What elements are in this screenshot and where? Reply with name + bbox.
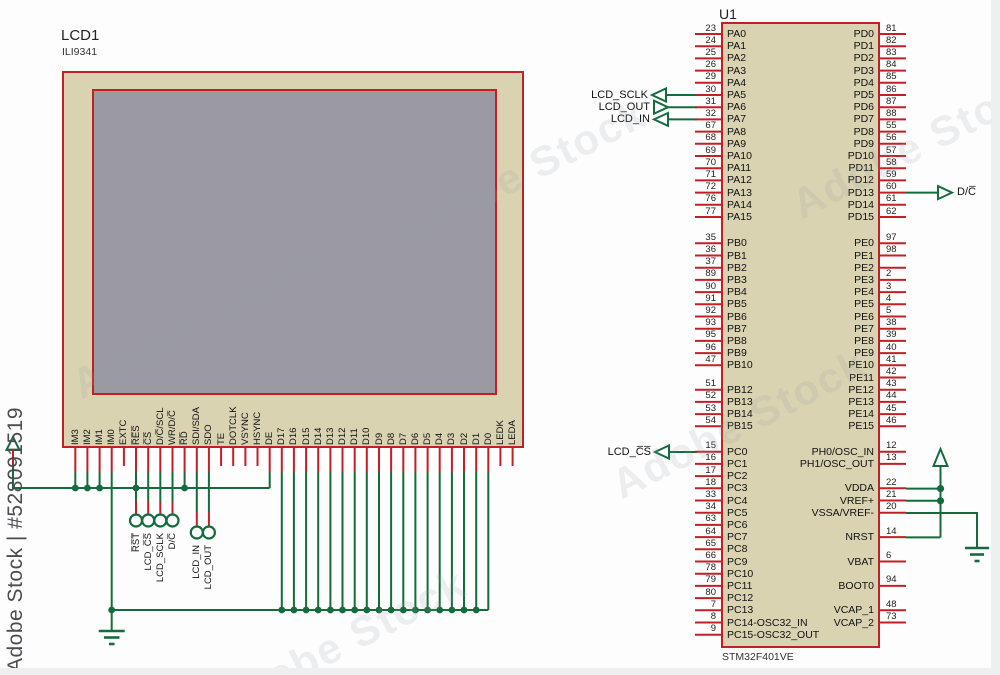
signal-label-lcd-in: LCD_IN xyxy=(550,112,650,126)
u1-pin-PB7: PB7 xyxy=(727,323,747,335)
signal-label-lcd-cs: LCD_C̅S̅ xyxy=(551,445,651,459)
u1-power-nets xyxy=(906,449,989,561)
u1-pin-PB8: PB8 xyxy=(727,335,747,347)
u1-pin-PD13: PD13 xyxy=(758,187,874,199)
u1-pin-PD14: PD14 xyxy=(758,199,874,211)
u1-pin-number-PE7: 38 xyxy=(886,317,918,328)
u1-pin-PD10: PD10 xyxy=(758,150,874,162)
lcd-pin-label-26: D9 xyxy=(374,433,385,445)
u1-pin-PC7: PC7 xyxy=(727,531,747,543)
lcd-pin-label-16: HSYNC xyxy=(252,412,263,445)
u1-pin-number-PD1: 82 xyxy=(886,35,918,46)
u1-pin-number-PD8: 55 xyxy=(886,120,918,131)
lcd-pin-label-6: R̅E̅S̅ xyxy=(131,425,142,445)
u1-pin-VSSA/VREF-: VSSA/VREF- xyxy=(758,507,874,519)
lcd-pin-label-8: D/C̅/SCL xyxy=(155,408,166,445)
u1-pin-number-NRST: 14 xyxy=(886,526,918,537)
u1-pin-NRST: NRST xyxy=(758,531,874,543)
lcd-pin-label-24: D11 xyxy=(349,428,360,445)
junction-dot xyxy=(84,485,91,492)
junction-dot xyxy=(72,485,79,492)
u1-pin-PE5: PE5 xyxy=(758,298,874,310)
u1-pin-PH0/OSC_IN: PH0/OSC_IN xyxy=(758,446,874,458)
u1-pin-PH1/OSC_OUT: PH1/OSC_OUT xyxy=(758,458,874,470)
u1-pin-PE8: PE8 xyxy=(758,335,874,347)
lcd-pin-label-33: D2 xyxy=(459,433,470,445)
u1-pin-PE9: PE9 xyxy=(758,347,874,359)
u1-pin-number-PD5: 86 xyxy=(886,84,918,95)
lcd-pin-label-32: D3 xyxy=(446,433,457,445)
u1-pin-number-PC11: 79 xyxy=(684,574,716,585)
u1-pin-PB5: PB5 xyxy=(727,298,747,310)
u1-pin-number-PH0/OSC_IN: 12 xyxy=(886,440,918,451)
u1-pin-PC1: PC1 xyxy=(727,458,747,470)
u1-pin-number-PA6: 31 xyxy=(684,96,716,107)
u1-pin-number-VCAP_2: 73 xyxy=(886,611,918,622)
u1-pin-PA9: PA9 xyxy=(727,138,746,150)
u1-pin-number-PE1: 98 xyxy=(886,244,918,255)
u1-pin-PE3: PE3 xyxy=(758,274,874,286)
lcd-pin-label-29: D6 xyxy=(410,433,421,445)
u1-pin-number-PB10: 47 xyxy=(684,354,716,365)
u1-pin-PC10: PC10 xyxy=(727,568,753,580)
u1-pin-PA6: PA6 xyxy=(727,101,746,113)
u1-pin-number-PB7: 93 xyxy=(684,317,716,328)
u1-pin-PA1: PA1 xyxy=(727,40,746,52)
ground-icon xyxy=(99,610,489,644)
lcd-pin-label-23: D12 xyxy=(337,428,348,445)
lcd-pin-label-4: IM0 xyxy=(106,429,117,445)
u1-pin-number-PC10: 78 xyxy=(684,562,716,573)
u1-pin-PB15: PB15 xyxy=(727,420,753,432)
u1-pin-number-PD2: 83 xyxy=(886,47,918,58)
u1-pin-number-PB15: 54 xyxy=(684,415,716,426)
lcd-pin-label-13: TE xyxy=(216,433,227,445)
u1-pin-number-PD3: 84 xyxy=(886,59,918,70)
u1-pin-PE0: PE0 xyxy=(758,237,874,249)
terminal-circle xyxy=(191,527,203,539)
lcd-pin-label-25: D10 xyxy=(361,428,372,445)
u1-pin-PD11: PD11 xyxy=(758,162,874,174)
u1-pin-BOOT0: BOOT0 xyxy=(758,580,874,592)
junction-dot xyxy=(327,607,334,614)
u1-pin-PE15: PE15 xyxy=(758,420,874,432)
u1-pin-PC5: PC5 xyxy=(727,507,747,519)
u1-pin-number-PE8: 39 xyxy=(886,329,918,340)
terminal-label: LCD_C̅S̅ xyxy=(143,533,154,571)
u1-pin-number-PA9: 68 xyxy=(684,132,716,143)
u1-pin-number-PE9: 40 xyxy=(886,342,918,353)
junction-dot xyxy=(108,607,115,614)
u1-pin-number-PE6: 5 xyxy=(886,305,918,316)
u1-pin-PD2: PD2 xyxy=(758,52,874,64)
u1-pin-number-VBAT: 6 xyxy=(886,550,918,561)
lcd-pin-label-30: D5 xyxy=(422,433,433,445)
u1-pin-number-PA1: 24 xyxy=(684,35,716,46)
junction-dot xyxy=(339,607,346,614)
u1-pin-number-PC6: 63 xyxy=(684,513,716,524)
u1-pin-number-PB5: 91 xyxy=(684,293,716,304)
u1-pin-number-PA5: 30 xyxy=(684,84,716,95)
u1-pin-number-VREF+: 21 xyxy=(886,489,918,500)
junction-dot xyxy=(181,485,188,492)
junction-dot xyxy=(376,607,383,614)
u1-pin-number-PH1/OSC_OUT: 13 xyxy=(886,452,918,463)
u1-pin-PC11: PC11 xyxy=(727,580,753,592)
junction-dot xyxy=(424,607,431,614)
junction-dot xyxy=(449,607,456,614)
u1-pin-PC2: PC2 xyxy=(727,470,747,482)
u1-pin-number-PC4: 33 xyxy=(684,489,716,500)
u1-pin-VREF+: VREF+ xyxy=(758,495,874,507)
u1-pin-number-PB3: 89 xyxy=(684,268,716,279)
u1-pin-number-PD4: 85 xyxy=(886,71,918,82)
u1-pin-PB9: PB9 xyxy=(727,347,747,359)
u1-pin-PB14: PB14 xyxy=(727,408,753,420)
terminal-label: LCD_SCLK xyxy=(155,533,166,582)
junction-dot xyxy=(133,485,140,492)
u1-pin-number-PA10: 69 xyxy=(684,145,716,156)
lcd-pin-label-36: LEDK xyxy=(495,420,506,445)
u1-pin-PA15: PA15 xyxy=(727,211,752,223)
u1-pin-PE1: PE1 xyxy=(758,250,874,262)
junction-dot xyxy=(461,607,468,614)
u1-pin-PA2: PA2 xyxy=(727,52,746,64)
lcd-pin-label-31: D4 xyxy=(434,433,445,445)
u1-pin-PB12: PB12 xyxy=(727,384,753,396)
u1-pin-number-PC14-OSC32_IN: 8 xyxy=(684,611,716,622)
u1-pin-PA5: PA5 xyxy=(727,89,746,101)
junction-dot xyxy=(303,607,310,614)
terminal-circle xyxy=(154,515,166,527)
u1-pin-PB6: PB6 xyxy=(727,311,747,323)
u1-pin-PC12: PC12 xyxy=(727,592,753,604)
u1-pin-number-PB13: 52 xyxy=(684,390,716,401)
u1-pin-number-PA15: 77 xyxy=(684,206,716,217)
lcd-pin-label-17: DE xyxy=(264,432,275,445)
lcd-pin-label-2: IM2 xyxy=(82,429,93,445)
u1-pin-VCAP_2: VCAP_2 xyxy=(758,617,874,629)
u1-pin-number-PE15: 46 xyxy=(886,415,918,426)
u1-pin-PC0: PC0 xyxy=(727,446,747,458)
schematic-canvas: LCD1 ILI9341 U1 STM32F401VE xyxy=(0,0,1000,675)
u1-pin-number-PB2: 37 xyxy=(684,256,716,267)
u1-pin-PE14: PE14 xyxy=(758,408,874,420)
u1-pin-number-PD14: 61 xyxy=(886,193,918,204)
u1-pin-PB4: PB4 xyxy=(727,286,747,298)
u1-pin-PA7: PA7 xyxy=(727,113,746,125)
u1-pin-PC3: PC3 xyxy=(727,482,747,494)
u1-pin-PA13: PA13 xyxy=(727,187,752,199)
frame-band-bottom xyxy=(0,668,1000,675)
u1-pin-number-PA3: 26 xyxy=(684,59,716,70)
u1-pin-number-PE10: 41 xyxy=(886,354,918,365)
lcd-pin-label-9: WR/D/C̅ xyxy=(167,410,178,445)
lcd-pin-label-22: D13 xyxy=(325,428,336,445)
u1-pin-number-PC13: 7 xyxy=(684,599,716,610)
u1-pin-PB0: PB0 xyxy=(727,237,747,249)
u1-pin-number-PD15: 62 xyxy=(886,206,918,217)
u1-pin-PA10: PA10 xyxy=(727,150,752,162)
lcd-pin-label-5: EXTC xyxy=(118,420,129,445)
u1-pin-number-PD7: 88 xyxy=(886,108,918,119)
junction-dot xyxy=(473,607,480,614)
u1-pin-PD5: PD5 xyxy=(758,89,874,101)
u1-pin-number-VCAP_1: 48 xyxy=(886,599,918,610)
junction-dot xyxy=(363,607,370,614)
u1-pin-PC6: PC6 xyxy=(727,519,747,531)
u1-pin-number-PD10: 57 xyxy=(886,145,918,156)
u1-pin-number-PA8: 67 xyxy=(684,120,716,131)
u1-pin-PE6: PE6 xyxy=(758,311,874,323)
junction-dot xyxy=(388,607,395,614)
u1-pin-number-PD6: 87 xyxy=(886,96,918,107)
u1-pin-PC9: PC9 xyxy=(727,556,747,568)
u1-pin-number-PA4: 29 xyxy=(684,71,716,82)
u1-pin-VBAT: VBAT xyxy=(758,556,874,568)
u1-pin-number-PB0: 35 xyxy=(684,232,716,243)
u1-pin-PD6: PD6 xyxy=(758,101,874,113)
u1-pin-number-PB1: 36 xyxy=(684,244,716,255)
u1-pin-PC8: PC8 xyxy=(727,543,747,555)
u1-pin-number-PA11: 70 xyxy=(684,157,716,168)
u1-pin-PE7: PE7 xyxy=(758,323,874,335)
u1-pin-PB2: PB2 xyxy=(727,262,747,274)
u1-pin-PC4: PC4 xyxy=(727,495,747,507)
u1-pin-number-PA2: 25 xyxy=(684,47,716,58)
terminal-label: LCD_OUT xyxy=(203,545,214,589)
terminal-label: D/C̅ xyxy=(167,533,178,549)
u1-pin-PB3: PB3 xyxy=(727,274,747,286)
u1-pin-number-PE12: 43 xyxy=(886,378,918,389)
lcd-pin-label-21: D14 xyxy=(313,428,324,445)
u1-pin-number-PA7: 32 xyxy=(684,108,716,119)
junction-dot xyxy=(96,485,103,492)
u1-pin-number-PD11: 58 xyxy=(886,157,918,168)
u1-pin-number-PE11: 42 xyxy=(886,366,918,377)
u1-pin-PB10: PB10 xyxy=(727,359,753,371)
u1-pin-number-PE4: 3 xyxy=(886,281,918,292)
lcd-pin-label-12: SDO xyxy=(203,424,214,445)
u1-pin-PD8: PD8 xyxy=(758,126,874,138)
lcd-pin-label-1: IM3 xyxy=(70,429,81,445)
u1-pin-number-PE14: 45 xyxy=(886,403,918,414)
lcd-pin-label-28: D7 xyxy=(398,433,409,445)
lcd-pin-label-7: C̅S̅ xyxy=(143,432,154,445)
u1-pin-PE12: PE12 xyxy=(758,384,874,396)
u1-pin-number-PC5: 34 xyxy=(684,501,716,512)
u1-pin-PD7: PD7 xyxy=(758,113,874,125)
u1-pin-PD3: PD3 xyxy=(758,65,874,77)
junction-dot xyxy=(315,607,322,614)
u1-pin-number-PC7: 64 xyxy=(684,526,716,537)
lcd-pin-label-37: LEDA xyxy=(507,420,518,445)
u1-pin-PD15: PD15 xyxy=(758,211,874,223)
terminal-circle xyxy=(142,515,154,527)
u1-pin-PE2: PE2 xyxy=(758,262,874,274)
terminal-label: LCD_IN xyxy=(191,545,202,579)
u1-pin-number-PA12: 71 xyxy=(684,169,716,180)
u1-pin-number-PA13: 72 xyxy=(684,181,716,192)
junction-dot xyxy=(291,607,298,614)
u1-pin-number-PE3: 2 xyxy=(886,268,918,279)
u1-pin-PD9: PD9 xyxy=(758,138,874,150)
u1-pin-number-PC0: 15 xyxy=(684,440,716,451)
u1-pin-PB13: PB13 xyxy=(727,396,753,408)
u1-pin-number-PB12: 51 xyxy=(684,378,716,389)
u1-pin-number-PD13: 60 xyxy=(886,181,918,192)
u1-pin-PC15-OSC32_OUT: PC15-OSC32_OUT xyxy=(727,629,819,641)
lcd-pin-label-10: R̅D̅ xyxy=(179,431,190,445)
junction-dot xyxy=(436,607,443,614)
u1-pin-PE10: PE10 xyxy=(758,359,874,371)
u1-pin-PE13: PE13 xyxy=(758,396,874,408)
u1-pin-PA0: PA0 xyxy=(727,28,746,40)
lcd-pin-label-3: IM1 xyxy=(94,429,105,445)
u1-pin-number-PC12: 80 xyxy=(684,587,716,598)
watermark-side: Adobe Stock | #528091519 xyxy=(4,407,28,672)
u1-pin-PD4: PD4 xyxy=(758,77,874,89)
junction-dot xyxy=(351,607,358,614)
frame-band-right xyxy=(991,0,1000,675)
u1-pin-PA4: PA4 xyxy=(727,77,746,89)
terminal-circle xyxy=(203,527,215,539)
lcd-pin-label-19: D16 xyxy=(288,428,299,445)
terminal-circle xyxy=(130,515,142,527)
u1-pin-number-PB4: 90 xyxy=(684,281,716,292)
u1-pin-PD1: PD1 xyxy=(758,40,874,52)
u1-pin-number-PB14: 53 xyxy=(684,403,716,414)
lcd-pin-label-34: D1 xyxy=(471,433,482,445)
u1-pin-number-PC9: 66 xyxy=(684,550,716,561)
u1-pin-PE11: PE11 xyxy=(758,372,874,384)
u1-pin-PA12: PA12 xyxy=(727,174,752,186)
u1-pin-number-PA0: 23 xyxy=(684,23,716,34)
u1-pin-number-PC3: 18 xyxy=(684,477,716,488)
u1-pin-number-PB9: 96 xyxy=(684,342,716,353)
u1-pin-number-VSSA/VREF-: 20 xyxy=(886,501,918,512)
u1-pin-number-PD12: 59 xyxy=(886,169,918,180)
junction-dot xyxy=(400,607,407,614)
u1-pin-number-PB6: 92 xyxy=(684,305,716,316)
u1-pin-PE4: PE4 xyxy=(758,286,874,298)
terminal-label: R̅S̅T̅ xyxy=(131,533,142,552)
u1-pin-PA3: PA3 xyxy=(727,65,746,77)
u1-pin-number-PC15-OSC32_OUT: 9 xyxy=(684,623,716,634)
u1-pin-PA8: PA8 xyxy=(727,126,746,138)
u1-pin-number-PC8: 65 xyxy=(684,538,716,549)
u1-pin-PD0: PD0 xyxy=(758,28,874,40)
u1-pin-VDDA: VDDA xyxy=(758,482,874,494)
u1-pin-VCAP_1: VCAP_1 xyxy=(758,604,874,616)
lcd-pin-label-27: D8 xyxy=(386,433,397,445)
ground-icon xyxy=(965,548,989,561)
u1-pin-number-PE0: 97 xyxy=(886,232,918,243)
u1-pin-number-VDDA: 22 xyxy=(886,477,918,488)
lcd-pin-label-20: D15 xyxy=(301,428,312,445)
u1-pin-number-BOOT0: 94 xyxy=(886,574,918,585)
u1-pin-PC13: PC13 xyxy=(727,604,753,616)
lcd-pin-label-18: D17 xyxy=(276,428,287,445)
lcd-pin-label-14: DOTCLK xyxy=(228,406,239,445)
u1-pin-PD12: PD12 xyxy=(758,174,874,186)
u1-pin-number-PD0: 81 xyxy=(886,23,918,34)
terminal-circle xyxy=(167,515,179,527)
u1-pin-number-PC1: 16 xyxy=(684,452,716,463)
u1-pin-number-PE5: 4 xyxy=(886,293,918,304)
lcd-pin-label-11: SDI/SDA xyxy=(191,407,202,445)
u1-pin-number-PE13: 44 xyxy=(886,390,918,401)
u1-pin-number-PC2: 17 xyxy=(684,465,716,476)
power-arrow-icon xyxy=(934,449,948,466)
u1-pin-number-PA14: 76 xyxy=(684,193,716,204)
u1-pin-PB1: PB1 xyxy=(727,250,747,262)
u1-pin-number-PB8: 95 xyxy=(684,329,716,340)
u1-pin-PA14: PA14 xyxy=(727,199,752,211)
junction-dot xyxy=(412,607,419,614)
junction-dot xyxy=(278,607,285,614)
lcd-pin-label-15: VSYNC xyxy=(240,412,251,445)
lcd-pin-label-35: D0 xyxy=(483,433,494,445)
u1-pin-number-PD9: 56 xyxy=(886,132,918,143)
u1-pin-PA11: PA11 xyxy=(727,162,751,174)
